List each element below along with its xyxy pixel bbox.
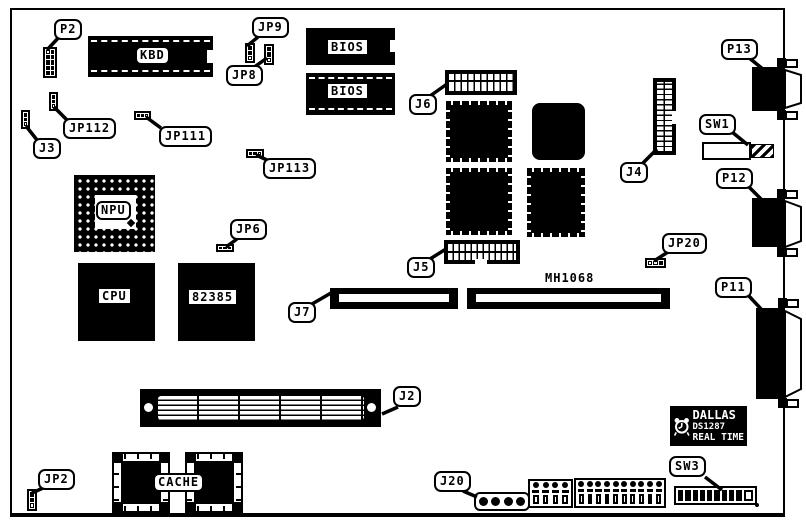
slot-opening: [339, 294, 449, 302]
p2-pin-header: [43, 47, 57, 78]
jumper-cell: [267, 52, 271, 56]
terminal-pin: [595, 481, 601, 487]
82385-chip-label: 82385: [189, 290, 236, 304]
qfp-chip-bottom-right: [527, 168, 585, 237]
callout-j3: J3: [33, 138, 61, 159]
dip-switch-cell: [729, 490, 734, 501]
chip-pins: [446, 106, 450, 157]
p12-dsub-shell: [785, 201, 801, 247]
dip-switch-cell: [707, 490, 712, 501]
terminal-hole: [596, 494, 601, 504]
chip-pins: [532, 168, 580, 172]
terminal-pin: [613, 481, 619, 487]
dip-switch-cell: [700, 490, 705, 501]
callout-sw3: SW3: [669, 456, 706, 477]
terminal-column: [647, 480, 654, 504]
cache-chip-label: CACHE: [153, 473, 204, 492]
jumper-cell: [248, 51, 252, 55]
connector-pin: [516, 497, 525, 506]
terminal-hole: [543, 495, 549, 504]
callout-jp112: JP112: [63, 118, 116, 139]
terminal-column: [595, 480, 602, 504]
dip-switch-cell: [714, 490, 719, 501]
terminal-pin: [604, 481, 610, 487]
callout-jp113: JP113: [263, 158, 316, 179]
terminal-hole: [533, 495, 539, 504]
terminal-bar: [552, 490, 559, 493]
rtc-chip: DALLAS DS1287 REAL TIME: [670, 406, 747, 446]
callout-jp8: JP8: [226, 65, 263, 86]
terminal-hole: [562, 495, 568, 504]
pin: [51, 55, 55, 59]
power-connector-small: [528, 479, 573, 508]
terminal-bar: [621, 489, 627, 492]
terminal-pin: [630, 481, 636, 487]
chip-pins: [527, 173, 531, 232]
sw1-switch-body: [702, 142, 751, 160]
callout-jp9: JP9: [252, 17, 289, 38]
callout-p13: P13: [721, 39, 758, 60]
callout-j20: J20: [434, 471, 471, 492]
bios2-chip-label: BIOS: [328, 84, 367, 98]
chip-corner: [187, 454, 196, 463]
jp2-jumper: [27, 489, 37, 511]
terminal-pin: [587, 481, 593, 487]
cpu-chip-label: CPU: [99, 289, 130, 303]
chip-corner: [232, 454, 241, 463]
p13-dsub-shell: [785, 70, 801, 108]
terminal-column: [542, 481, 550, 504]
qfp-chip-top-right: [532, 103, 585, 160]
chip-pins: [508, 173, 512, 230]
jumper-cell: [52, 95, 55, 99]
dip-switch-cell: [685, 490, 690, 501]
jumper-cell: [24, 113, 27, 117]
motherboard-diagram: DALLAS DS1287 REAL TIME KBD BIOS BIOS NP…: [0, 0, 806, 527]
p13-screw-tab-top: [785, 59, 798, 68]
jp111-jumper: [134, 111, 151, 120]
j5-pin-grid: [448, 244, 516, 260]
pin: [46, 60, 50, 64]
chip-pins: [446, 173, 450, 230]
jp112-jumper: [49, 92, 58, 111]
p12-screw-tab-bottom: [785, 248, 798, 257]
j4-pin-grid: [657, 82, 672, 151]
j7-slot-left: [330, 288, 458, 309]
chip-pins: [197, 454, 231, 459]
chip-pins: [451, 158, 507, 162]
terminal-hole: [605, 494, 610, 504]
j6-pins-row: [449, 74, 513, 80]
terminal-bar: [613, 489, 619, 492]
terminal-hole: [553, 495, 559, 504]
callout-jp111: JP111: [159, 126, 212, 147]
jumper-cell: [223, 247, 226, 249]
terminal-column: [604, 480, 611, 504]
terminal-hole: [588, 494, 593, 504]
terminal-pin: [656, 481, 662, 487]
terminal-bar: [638, 489, 644, 492]
terminal-column: [638, 480, 645, 504]
jumper-cell: [145, 114, 148, 117]
rtc-type: REAL TIME: [693, 432, 744, 443]
connector-pin: [479, 497, 488, 506]
pin: [51, 60, 55, 64]
jumper-cell: [30, 498, 34, 503]
terminal-column: [655, 480, 662, 504]
chip-pins: [124, 506, 158, 511]
terminal-hole: [639, 494, 644, 504]
dip-switch-cell: [744, 490, 753, 501]
slot-opening: [476, 294, 661, 302]
p11-dsub-shell: [785, 311, 801, 397]
chip-corner: [114, 502, 123, 511]
callout-jp20: JP20: [662, 233, 707, 254]
dip-switch-cell: [722, 490, 727, 501]
terminal-hole: [579, 494, 584, 504]
jumper-cell: [228, 247, 231, 249]
jumper-cell: [30, 492, 34, 497]
npu-chip-label: NPU: [96, 201, 131, 220]
terminal-column: [587, 480, 594, 504]
terminal-hole: [622, 494, 627, 504]
chip-pins: [581, 173, 585, 232]
dip-switch-cell: [678, 490, 683, 501]
terminal-bar: [656, 489, 662, 492]
chip-corner: [232, 502, 241, 511]
chip-corner: [114, 454, 123, 463]
j5-notch: [475, 259, 487, 264]
terminal-column: [561, 481, 569, 504]
callout-p12: P12: [716, 168, 753, 189]
connector-pin: [504, 497, 513, 506]
terminal-pin: [543, 482, 549, 488]
terminal-bar: [604, 489, 610, 492]
callout-p2: P2: [54, 19, 82, 40]
jumper-cell: [253, 152, 256, 155]
jumper-cell: [248, 56, 252, 60]
jp20-jumper: [645, 258, 666, 268]
terminal-bar: [647, 489, 653, 492]
terminal-bar: [562, 490, 569, 493]
jumper-cell: [219, 247, 222, 249]
terminal-column: [612, 480, 619, 504]
j6-connector: [445, 70, 517, 95]
j3-jumper: [21, 110, 30, 129]
pin: [51, 50, 55, 54]
callout-jp6: JP6: [230, 219, 267, 240]
bios1-chip-label: BIOS: [328, 40, 367, 54]
sw3-dip-switch: [674, 486, 757, 505]
jp9-jumper: [245, 43, 255, 63]
terminal-bar: [587, 489, 593, 492]
chip-pins: [451, 168, 507, 172]
terminal-hole: [656, 494, 661, 504]
callout-j7: J7: [288, 302, 316, 323]
jumper-cell: [648, 261, 652, 265]
pin: [46, 55, 50, 59]
dip-switch-cell: [693, 490, 698, 501]
kbd-chip-notch: [207, 50, 213, 63]
j2-slot-contacts: [158, 396, 364, 420]
jumper-cell: [52, 104, 55, 108]
jp113-jumper: [246, 149, 264, 158]
alarm-clock-icon: [673, 413, 691, 439]
j20-connector: [474, 492, 530, 511]
jumper-cell: [267, 58, 271, 62]
terminal-column: [578, 480, 585, 504]
jumper-cell: [30, 503, 34, 508]
j7-slot-right: [467, 288, 670, 309]
terminal-column: [621, 480, 628, 504]
pin: [46, 66, 50, 70]
terminal-column: [630, 480, 637, 504]
jumper-cell: [249, 152, 252, 155]
j4-notch: [672, 111, 678, 124]
mh1068-text: MH1068: [545, 271, 594, 285]
jumper-cell: [258, 152, 261, 155]
p12-screw-tab-top: [785, 190, 798, 199]
connector-pin: [491, 497, 500, 506]
p13-port: [752, 67, 785, 111]
jumper-cell: [248, 46, 252, 50]
terminal-pin: [621, 481, 627, 487]
pin: [46, 71, 50, 75]
jumper-cell: [659, 261, 663, 265]
jumper-cell: [267, 47, 271, 51]
terminal-pin: [638, 481, 644, 487]
j5-connector: [444, 240, 520, 264]
terminal-hole: [648, 494, 653, 504]
terminal-pin: [552, 482, 558, 488]
jumper-cell: [24, 122, 27, 126]
callout-j6: J6: [409, 94, 437, 115]
j6-pins-row: [449, 82, 513, 91]
terminal-bar: [630, 489, 636, 492]
qfp-chip-top-left: [446, 101, 512, 162]
dip-switch-cell: [736, 490, 741, 501]
sw1-switch-slider: [751, 144, 774, 158]
callout-j5: J5: [407, 257, 435, 278]
callout-j2: J2: [393, 386, 421, 407]
qfp-chip-bottom-left: [446, 168, 512, 235]
rtc-part-number: DS1287: [693, 422, 744, 432]
rtc-text-block: DALLAS DS1287 REAL TIME: [693, 409, 744, 443]
chip-pins: [114, 464, 119, 501]
j4-connector: [653, 78, 676, 155]
chip-pins: [451, 101, 507, 105]
terminal-bar: [578, 489, 584, 492]
chip-corner: [159, 454, 168, 463]
chip-pins: [124, 454, 158, 459]
chip-pins: [532, 233, 580, 237]
chip-corner: [187, 502, 196, 511]
terminal-pin: [562, 482, 568, 488]
j2-mount-hole: [144, 403, 153, 412]
jumper-cell: [24, 118, 27, 122]
pin: [51, 66, 55, 70]
jumper-cell: [52, 100, 55, 104]
bios-chip-1-notch: [390, 40, 395, 52]
callout-j4: J4: [620, 162, 648, 183]
p13-screw-tab-bottom: [785, 111, 798, 120]
kbd-chip-label: KBD: [135, 46, 170, 65]
terminal-bar: [595, 489, 601, 492]
terminal-bar: [542, 490, 549, 493]
chip-pins: [236, 464, 241, 501]
pin: [46, 50, 50, 54]
j2-mount-hole: [367, 403, 376, 412]
callout-jp2: JP2: [38, 469, 75, 490]
chip-corner: [159, 502, 168, 511]
terminal-pin: [533, 482, 539, 488]
terminal-column: [552, 481, 560, 504]
chip-pins: [451, 231, 507, 235]
rtc-brand: DALLAS: [693, 409, 744, 422]
jumper-cell: [141, 114, 144, 117]
terminal-pin: [647, 481, 653, 487]
jp8-jumper: [264, 44, 274, 65]
power-connector-large: [574, 478, 666, 508]
j2-slot: [140, 389, 381, 427]
terminal-bar: [532, 490, 539, 493]
p12-port: [752, 198, 785, 247]
chip-pins: [508, 106, 512, 157]
p11-screw-tab-top: [786, 299, 799, 308]
terminal-hole: [613, 494, 618, 504]
pin: [51, 71, 55, 75]
terminal-pin: [578, 481, 584, 487]
jp6-jumper: [216, 244, 234, 252]
terminal-column: [532, 481, 540, 504]
callout-sw1: SW1: [699, 114, 736, 135]
p11-port: [756, 308, 785, 399]
chip-pins: [197, 506, 231, 511]
jumper-cell: [137, 114, 140, 117]
jumper-cell: [653, 261, 657, 265]
p11-screw-tab-bottom: [786, 399, 799, 408]
terminal-hole: [630, 494, 635, 504]
callout-p11: P11: [715, 277, 752, 298]
